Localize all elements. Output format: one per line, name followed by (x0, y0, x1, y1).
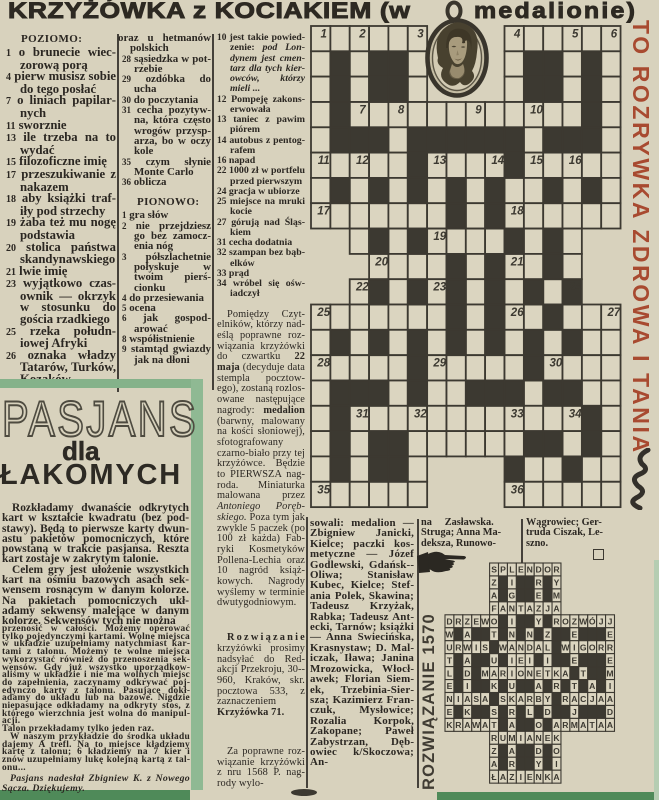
svg-text:A: A (553, 772, 559, 782)
svg-text:R: R (455, 616, 462, 626)
svg-text:A: A (553, 604, 559, 614)
svg-text:T: T (572, 681, 578, 691)
svg-text:K: K (553, 668, 560, 678)
svg-text:D: D (607, 707, 613, 717)
svg-text:L: L (545, 642, 550, 652)
svg-text:25: 25 (316, 307, 330, 319)
svg-text:W: W (463, 642, 472, 652)
svg-text:R: R (598, 642, 605, 652)
svg-text:I: I (520, 772, 522, 782)
svg-text:T: T (581, 668, 587, 678)
svg-text:K: K (509, 694, 516, 704)
svg-text:A: A (607, 694, 613, 704)
svg-text:20: 20 (374, 256, 388, 268)
svg-text:O: O (517, 668, 524, 678)
svg-text:L: L (447, 668, 452, 678)
svg-text:D: D (464, 668, 470, 678)
svg-text:U: U (491, 655, 497, 665)
svg-text:E: E (536, 591, 542, 601)
svg-text:E: E (571, 629, 577, 639)
svg-text:I: I (457, 694, 459, 704)
svg-text:O: O (562, 616, 569, 626)
svg-text:A: A (527, 604, 533, 614)
svg-text:K: K (544, 772, 551, 782)
svg-text:I: I (466, 681, 468, 691)
svg-text:I: I (511, 655, 513, 665)
svg-text:E: E (518, 565, 524, 575)
svg-text:A: A (536, 642, 542, 652)
svg-text:D: D (536, 746, 542, 756)
svg-text:I: I (555, 759, 557, 769)
svg-text:G: G (580, 642, 587, 652)
svg-text:M: M (508, 733, 515, 743)
svg-text:I: I (546, 655, 548, 665)
svg-text:D: D (527, 642, 533, 652)
svg-text:S: S (473, 694, 479, 704)
svg-text:T: T (491, 720, 497, 730)
svg-text:N: N (518, 642, 524, 652)
svg-text:A: A (500, 772, 506, 782)
svg-text:Z: Z (491, 578, 496, 588)
svg-text:J: J (545, 604, 550, 614)
svg-text:B: B (536, 694, 542, 704)
svg-text:Y: Y (536, 759, 542, 769)
svg-text:31: 31 (356, 408, 369, 420)
svg-text:A: A (518, 694, 524, 704)
svg-text:A: A (562, 668, 568, 678)
svg-text:Z: Z (509, 772, 514, 782)
svg-text:Z: Z (465, 616, 470, 626)
svg-text:7: 7 (359, 105, 366, 117)
svg-text:Z: Z (536, 604, 541, 614)
svg-text:E: E (571, 655, 577, 665)
svg-text:N: N (446, 694, 452, 704)
svg-text:A: A (598, 720, 604, 730)
svg-text:O: O (535, 720, 542, 730)
svg-text:M: M (606, 668, 613, 678)
svg-text:18: 18 (511, 206, 524, 218)
svg-text:A: A (464, 655, 470, 665)
svg-text:S: S (500, 694, 506, 704)
svg-text:24: 24 (568, 282, 582, 294)
svg-text:Y: Y (554, 578, 560, 588)
svg-text:14: 14 (491, 155, 504, 167)
svg-text:N: N (509, 604, 515, 614)
svg-text:A: A (509, 720, 515, 730)
svg-text:A: A (589, 681, 595, 691)
svg-text:1: 1 (320, 29, 326, 41)
svg-text:R: R (527, 694, 534, 704)
svg-text:Ł: Ł (491, 772, 496, 782)
svg-text:A: A (491, 759, 497, 769)
svg-text:M: M (571, 720, 578, 730)
svg-text:N: N (509, 629, 515, 639)
svg-text:T: T (518, 604, 524, 614)
svg-text:I: I (511, 578, 513, 588)
svg-text:A: A (607, 720, 613, 730)
svg-text:T: T (590, 720, 596, 730)
svg-text:R: R (500, 668, 507, 678)
svg-text:A: A (580, 720, 586, 730)
svg-text:W: W (499, 642, 508, 652)
svg-text:Z: Z (545, 629, 550, 639)
svg-text:30: 30 (550, 358, 563, 370)
svg-text:19: 19 (433, 231, 446, 243)
svg-text:R: R (455, 642, 462, 652)
svg-text:A: A (482, 720, 488, 730)
svg-text:Y: Y (536, 616, 542, 626)
svg-text:M: M (482, 668, 489, 678)
svg-text:A: A (491, 591, 497, 601)
svg-text:J: J (608, 616, 613, 626)
svg-text:J: J (599, 616, 604, 626)
svg-text:N: N (527, 565, 533, 575)
svg-text:4: 4 (513, 29, 521, 41)
svg-text:W: W (481, 616, 490, 626)
svg-text:A: A (491, 668, 497, 678)
svg-text:K: K (553, 733, 560, 743)
svg-text:J: J (572, 707, 577, 717)
svg-text:A: A (536, 681, 542, 691)
svg-text:N: N (527, 629, 533, 639)
svg-text:E: E (447, 707, 453, 717)
svg-text:F: F (491, 604, 496, 614)
svg-text:L: L (527, 707, 532, 717)
svg-text:A: A (500, 604, 506, 614)
svg-text:28: 28 (316, 358, 330, 370)
svg-text:O: O (553, 746, 560, 756)
svg-text:R: R (536, 578, 543, 588)
svg-text:22: 22 (355, 282, 369, 294)
svg-text:6: 6 (611, 29, 618, 41)
svg-text:A: A (464, 720, 470, 730)
svg-text:D: D (446, 616, 452, 626)
svg-text:E: E (447, 681, 453, 691)
svg-text:32: 32 (414, 408, 427, 420)
svg-text:A: A (482, 694, 488, 704)
svg-text:R: R (562, 694, 569, 704)
svg-text:27: 27 (607, 307, 621, 319)
svg-text:15: 15 (530, 155, 543, 167)
svg-text:E: E (473, 616, 479, 626)
svg-text:R: R (455, 720, 462, 730)
svg-text:A: A (464, 694, 470, 704)
svg-text:A: A (527, 733, 533, 743)
svg-text:23: 23 (432, 282, 446, 294)
svg-text:R: R (553, 616, 560, 626)
svg-text:M: M (553, 591, 560, 601)
svg-text:16: 16 (569, 155, 582, 167)
svg-text:J: J (590, 694, 595, 704)
svg-text:A: A (571, 694, 577, 704)
svg-text:8: 8 (398, 105, 405, 117)
svg-text:11: 11 (318, 155, 330, 167)
svg-text:I: I (511, 668, 513, 678)
svg-text:O: O (491, 616, 498, 626)
svg-text:R: R (509, 759, 516, 769)
svg-text:26: 26 (510, 307, 524, 319)
svg-text:S: S (491, 707, 497, 717)
svg-text:U: U (500, 733, 506, 743)
svg-text:Y: Y (545, 694, 551, 704)
svg-text:35: 35 (317, 484, 330, 496)
svg-text:E: E (607, 629, 613, 639)
svg-text:R: R (509, 707, 516, 717)
svg-text:I: I (475, 642, 477, 652)
svg-text:O: O (544, 565, 551, 575)
svg-text:T: T (545, 668, 551, 678)
svg-text:I: I (609, 681, 611, 691)
svg-text:R: R (607, 642, 614, 652)
svg-text:W: W (561, 642, 570, 652)
svg-text:L: L (509, 565, 514, 575)
svg-text:I: I (529, 655, 531, 665)
svg-text:W: W (579, 616, 588, 626)
svg-text:A: A (509, 746, 515, 756)
svg-text:E: E (536, 668, 542, 678)
svg-text:U: U (446, 642, 452, 652)
svg-text:E: E (607, 655, 613, 665)
svg-text:2: 2 (358, 29, 366, 41)
svg-text:R: R (562, 720, 569, 730)
svg-text:D: D (536, 565, 542, 575)
svg-text:Ó: Ó (589, 615, 596, 626)
svg-text:E: E (545, 733, 551, 743)
svg-text:D: D (544, 707, 550, 717)
svg-text:29: 29 (432, 358, 446, 370)
svg-text:I: I (520, 733, 522, 743)
svg-text:P: P (500, 565, 506, 575)
svg-text:T: T (447, 655, 453, 665)
svg-text:9: 9 (475, 105, 482, 117)
svg-text:33: 33 (511, 408, 524, 420)
svg-text:K: K (464, 707, 471, 717)
svg-text:13: 13 (433, 155, 446, 167)
svg-text:R: R (491, 733, 498, 743)
svg-text:K: K (446, 720, 453, 730)
svg-text:E: E (518, 655, 524, 665)
svg-text:A: A (464, 629, 470, 639)
svg-text:10: 10 (530, 105, 543, 117)
svg-text:A: A (598, 694, 604, 704)
svg-text:E: E (527, 772, 533, 782)
svg-text:N: N (536, 733, 542, 743)
svg-text:W: W (472, 720, 481, 730)
svg-text:N: N (527, 668, 533, 678)
svg-text:21: 21 (510, 256, 524, 268)
svg-text:Z: Z (491, 746, 496, 756)
svg-text:C: C (580, 694, 586, 704)
svg-text:I: I (511, 616, 513, 626)
svg-text:O: O (589, 642, 596, 652)
svg-text:A: A (509, 642, 515, 652)
svg-text:S: S (491, 565, 497, 575)
svg-text:T: T (491, 629, 497, 639)
svg-text:K: K (491, 681, 498, 691)
svg-text:U: U (509, 681, 515, 691)
svg-text:I: I (573, 642, 575, 652)
svg-text:S: S (482, 642, 488, 652)
svg-text:N: N (536, 772, 542, 782)
svg-text:R: R (553, 681, 560, 691)
svg-text:12: 12 (356, 155, 369, 167)
svg-text:5: 5 (572, 29, 579, 41)
svg-text:36: 36 (511, 484, 524, 496)
svg-text:34: 34 (569, 408, 582, 420)
svg-text:Z: Z (572, 616, 577, 626)
svg-text:17: 17 (317, 206, 330, 218)
svg-text:A: A (553, 720, 559, 730)
svg-text:G: G (509, 591, 516, 601)
svg-text:W: W (445, 629, 454, 639)
svg-text:R: R (553, 565, 560, 575)
